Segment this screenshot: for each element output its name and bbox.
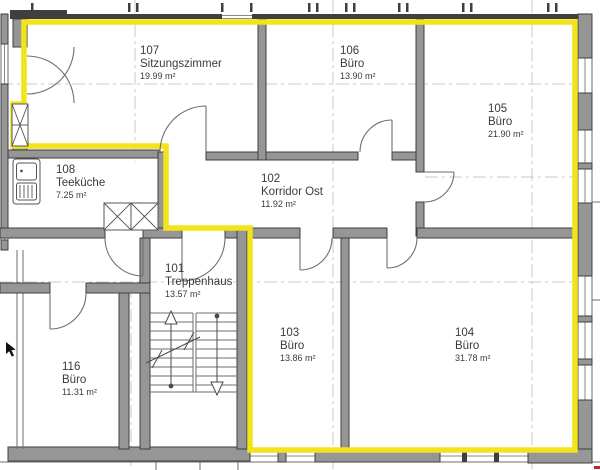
floorplan-drawing[interactable] (0, 0, 600, 470)
shaft-x-icon (12, 104, 28, 146)
room-label-108[interactable]: 108 Teeküche 7.25 m² (56, 164, 105, 201)
room-name: Büro (340, 58, 376, 71)
room-number: 106 (340, 45, 376, 58)
room-area: 13.86 m² (280, 353, 316, 364)
room-label-106[interactable]: 106 Büro 13.90 m² (340, 45, 376, 82)
room-number: 108 (56, 164, 105, 177)
window-ticks (31, 3, 558, 12)
room-area: 7.25 m² (56, 190, 105, 201)
room-number: 116 (62, 361, 97, 374)
floorplan-page: 107 Sitzungszimmer 19.99 m² 106 Büro 13.… (0, 0, 600, 470)
room-label-116[interactable]: 116 Büro 11.31 m² (62, 361, 97, 398)
room-label-102[interactable]: 102 Korridor Ost 11.92 m² (261, 173, 323, 210)
room-label-101[interactable]: 101 Treppenhaus 13.57 m² (165, 263, 232, 300)
room-area: 31.78 m² (455, 353, 491, 364)
room-area: 21.90 m² (488, 129, 524, 140)
room-number: 107 (140, 45, 222, 58)
room-name: Büro (455, 340, 491, 353)
room-number: 103 (280, 327, 316, 340)
room-number: 104 (455, 327, 491, 340)
room-number: 101 (165, 263, 232, 276)
room-label-107[interactable]: 107 Sitzungszimmer 19.99 m² (140, 45, 222, 82)
room-name: Treppenhaus (165, 276, 232, 289)
stairs-icon (146, 311, 237, 395)
cabinet-x-icon (104, 203, 158, 230)
room-area: 13.90 m² (340, 71, 376, 82)
room-name: Sitzungszimmer (140, 58, 222, 71)
room-area: 11.31 m² (62, 387, 97, 398)
sink-icon (13, 159, 40, 204)
red-mark (594, 466, 600, 469)
cursor-icon (6, 342, 16, 357)
room-label-105[interactable]: 105 Büro 21.90 m² (488, 103, 524, 140)
room-number: 102 (261, 173, 323, 186)
room-label-103[interactable]: 103 Büro 13.86 m² (280, 327, 316, 364)
room-name: Korridor Ost (261, 186, 323, 199)
room-name: Teeküche (56, 177, 105, 190)
room-area: 13.57 m² (165, 289, 232, 300)
room-name: Büro (280, 340, 316, 353)
room-number: 105 (488, 103, 524, 116)
room-area: 11.92 m² (261, 199, 323, 210)
room-name: Büro (62, 374, 97, 387)
room-area: 19.99 m² (140, 71, 222, 82)
room-name: Büro (488, 116, 524, 129)
room-label-104[interactable]: 104 Büro 31.78 m² (455, 327, 491, 364)
